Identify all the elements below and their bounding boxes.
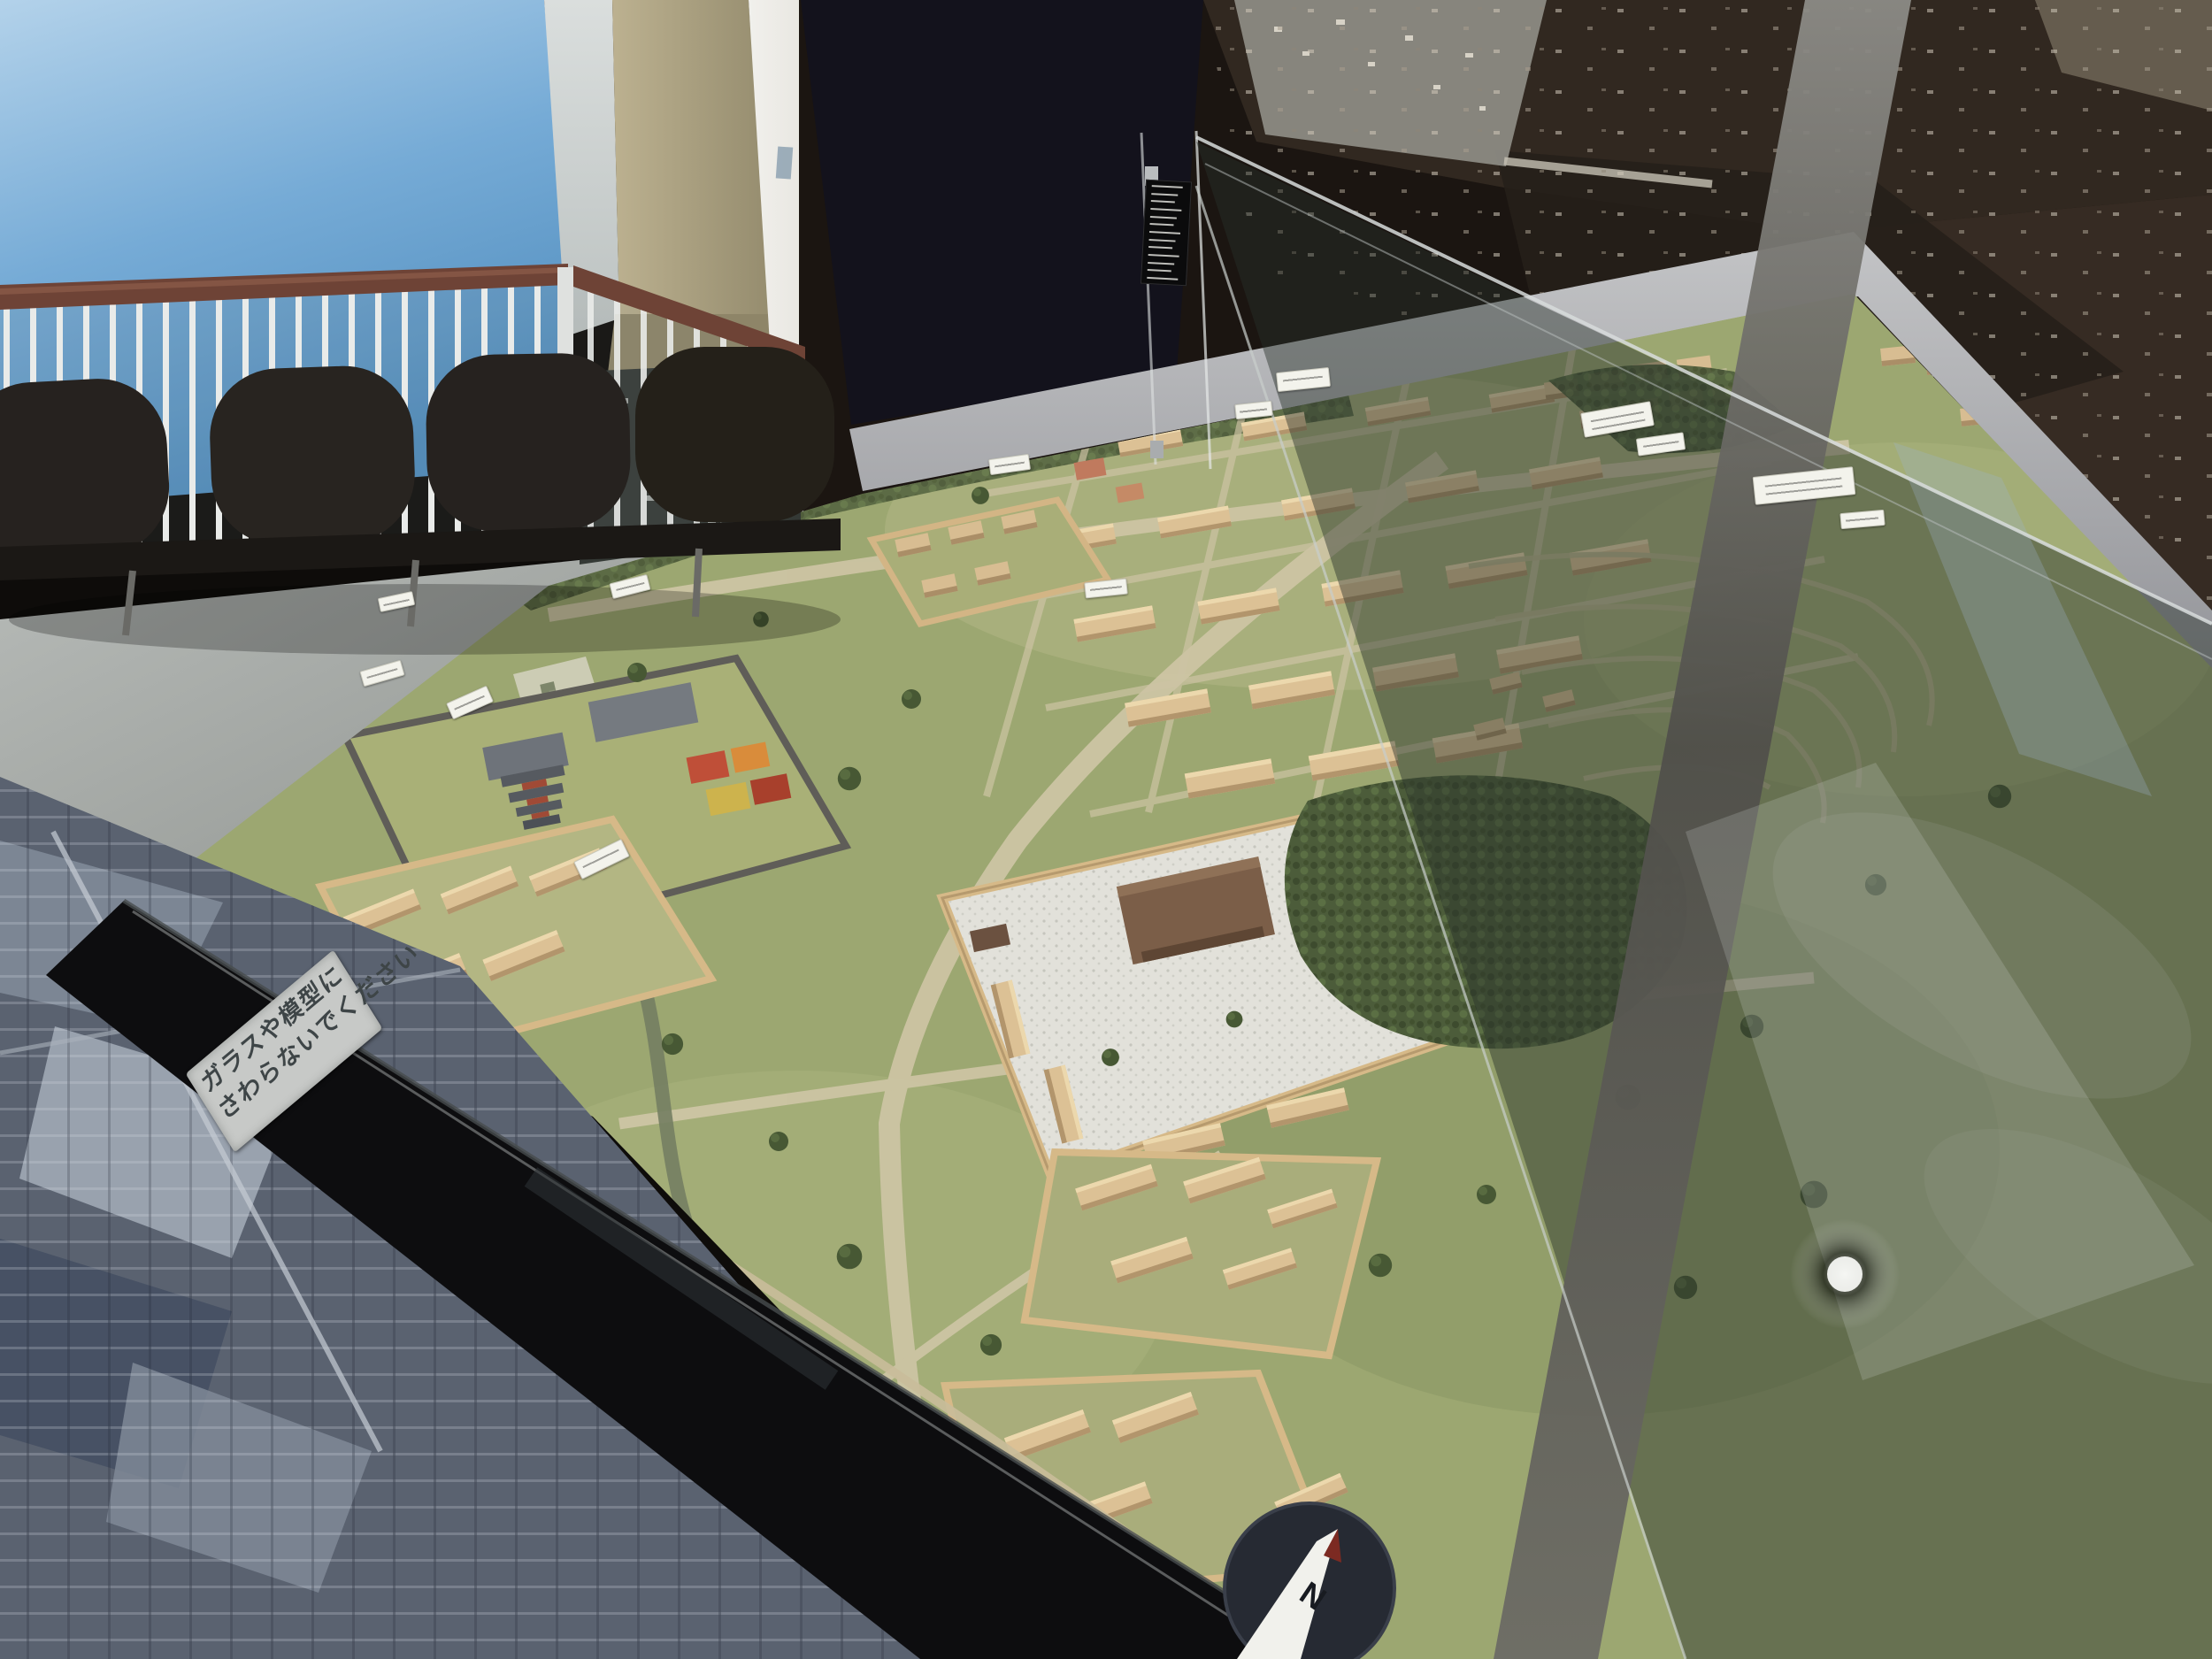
compass: N bbox=[1225, 1503, 1394, 1659]
exhibit-info-panel bbox=[1141, 180, 1192, 287]
beige-pillar bbox=[612, 0, 772, 320]
scene-canvas: N bbox=[0, 0, 2212, 1659]
museum-diorama-photo: N ガラスや模型に さわらないでください bbox=[0, 0, 2212, 1659]
wall-tag bbox=[776, 146, 793, 179]
